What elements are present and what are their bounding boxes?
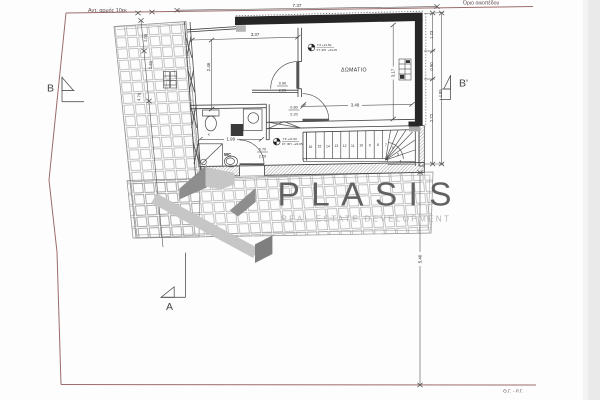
svg-text:3.17: 3.17 — [391, 68, 396, 77]
svg-text:B': B' — [459, 78, 468, 90]
svg-text:5.40: 5.40 — [417, 254, 422, 263]
svg-text:ΔΩΜΑΤΙΟ: ΔΩΜΑΤΙΟ — [341, 68, 367, 74]
svg-text:3.37: 3.37 — [251, 32, 260, 37]
svg-text:0.90: 0.90 — [429, 62, 434, 71]
svg-text:Τ.Σ +21.50: Τ.Σ +21.50 — [283, 137, 298, 141]
svg-text:REAL ESTATE DEVELOPMENT: REAL ESTATE DEVELOPMENT — [281, 215, 451, 224]
svg-text:0.80: 0.80 — [290, 106, 297, 110]
svg-text:Θ.Γ. - Ρ.Γ.: Θ.Γ. - Ρ.Γ. — [503, 389, 523, 395]
svg-text:B: B — [47, 83, 54, 95]
svg-text:0.70: 0.70 — [259, 148, 266, 152]
svg-text:ΣΤ. ΦΠ. +23.05: ΣΤ. ΦΠ. +23.05 — [317, 48, 338, 52]
svg-text:6: 6 — [392, 146, 394, 150]
svg-text:2.20: 2.20 — [290, 113, 297, 117]
svg-text:A: A — [166, 301, 173, 313]
svg-text:7.37: 7.37 — [293, 3, 302, 8]
svg-text:1.23: 1.23 — [429, 30, 434, 39]
svg-text:4: 4 — [400, 160, 402, 164]
svg-text:15: 15 — [318, 145, 322, 149]
svg-text:1.99: 1.99 — [227, 137, 236, 142]
svg-text:0.90: 0.90 — [279, 82, 286, 86]
svg-text:ΣΤ. ΦΠ. +22.95: ΣΤ. ΦΠ. +22.95 — [282, 142, 303, 146]
svg-text:4.85: 4.85 — [438, 89, 443, 98]
svg-text:2.72: 2.72 — [429, 113, 434, 122]
svg-text:5: 5 — [397, 153, 399, 157]
svg-text:3.48: 3.48 — [351, 102, 360, 107]
svg-text:4.70: 4.70 — [136, 92, 142, 101]
svg-text:1.00: 1.00 — [142, 33, 148, 42]
svg-text:2.46: 2.46 — [206, 62, 211, 71]
svg-text:1.60: 1.60 — [147, 60, 153, 69]
svg-text:PLASIS: PLASIS — [278, 176, 459, 213]
svg-text:2.20: 2.20 — [259, 155, 266, 159]
svg-text:Αντ. αρμός 10εκ: Αντ. αρμός 10εκ — [88, 7, 127, 14]
svg-text:Όριο οικοπέδου: Όριο οικοπέδου — [462, 0, 499, 7]
svg-text:8: 8 — [377, 143, 379, 147]
svg-text:11: 11 — [351, 144, 355, 148]
svg-text:14: 14 — [326, 144, 330, 148]
svg-text:2.20: 2.20 — [279, 89, 286, 93]
svg-text:Τ.Σ +21.50: Τ.Σ +21.50 — [317, 43, 332, 47]
svg-text:16: 16 — [309, 145, 313, 149]
svg-text:7: 7 — [385, 143, 387, 147]
svg-text:13: 13 — [334, 144, 338, 148]
svg-text:10: 10 — [359, 144, 363, 148]
svg-text:9: 9 — [369, 143, 371, 147]
svg-text:12: 12 — [343, 144, 347, 148]
